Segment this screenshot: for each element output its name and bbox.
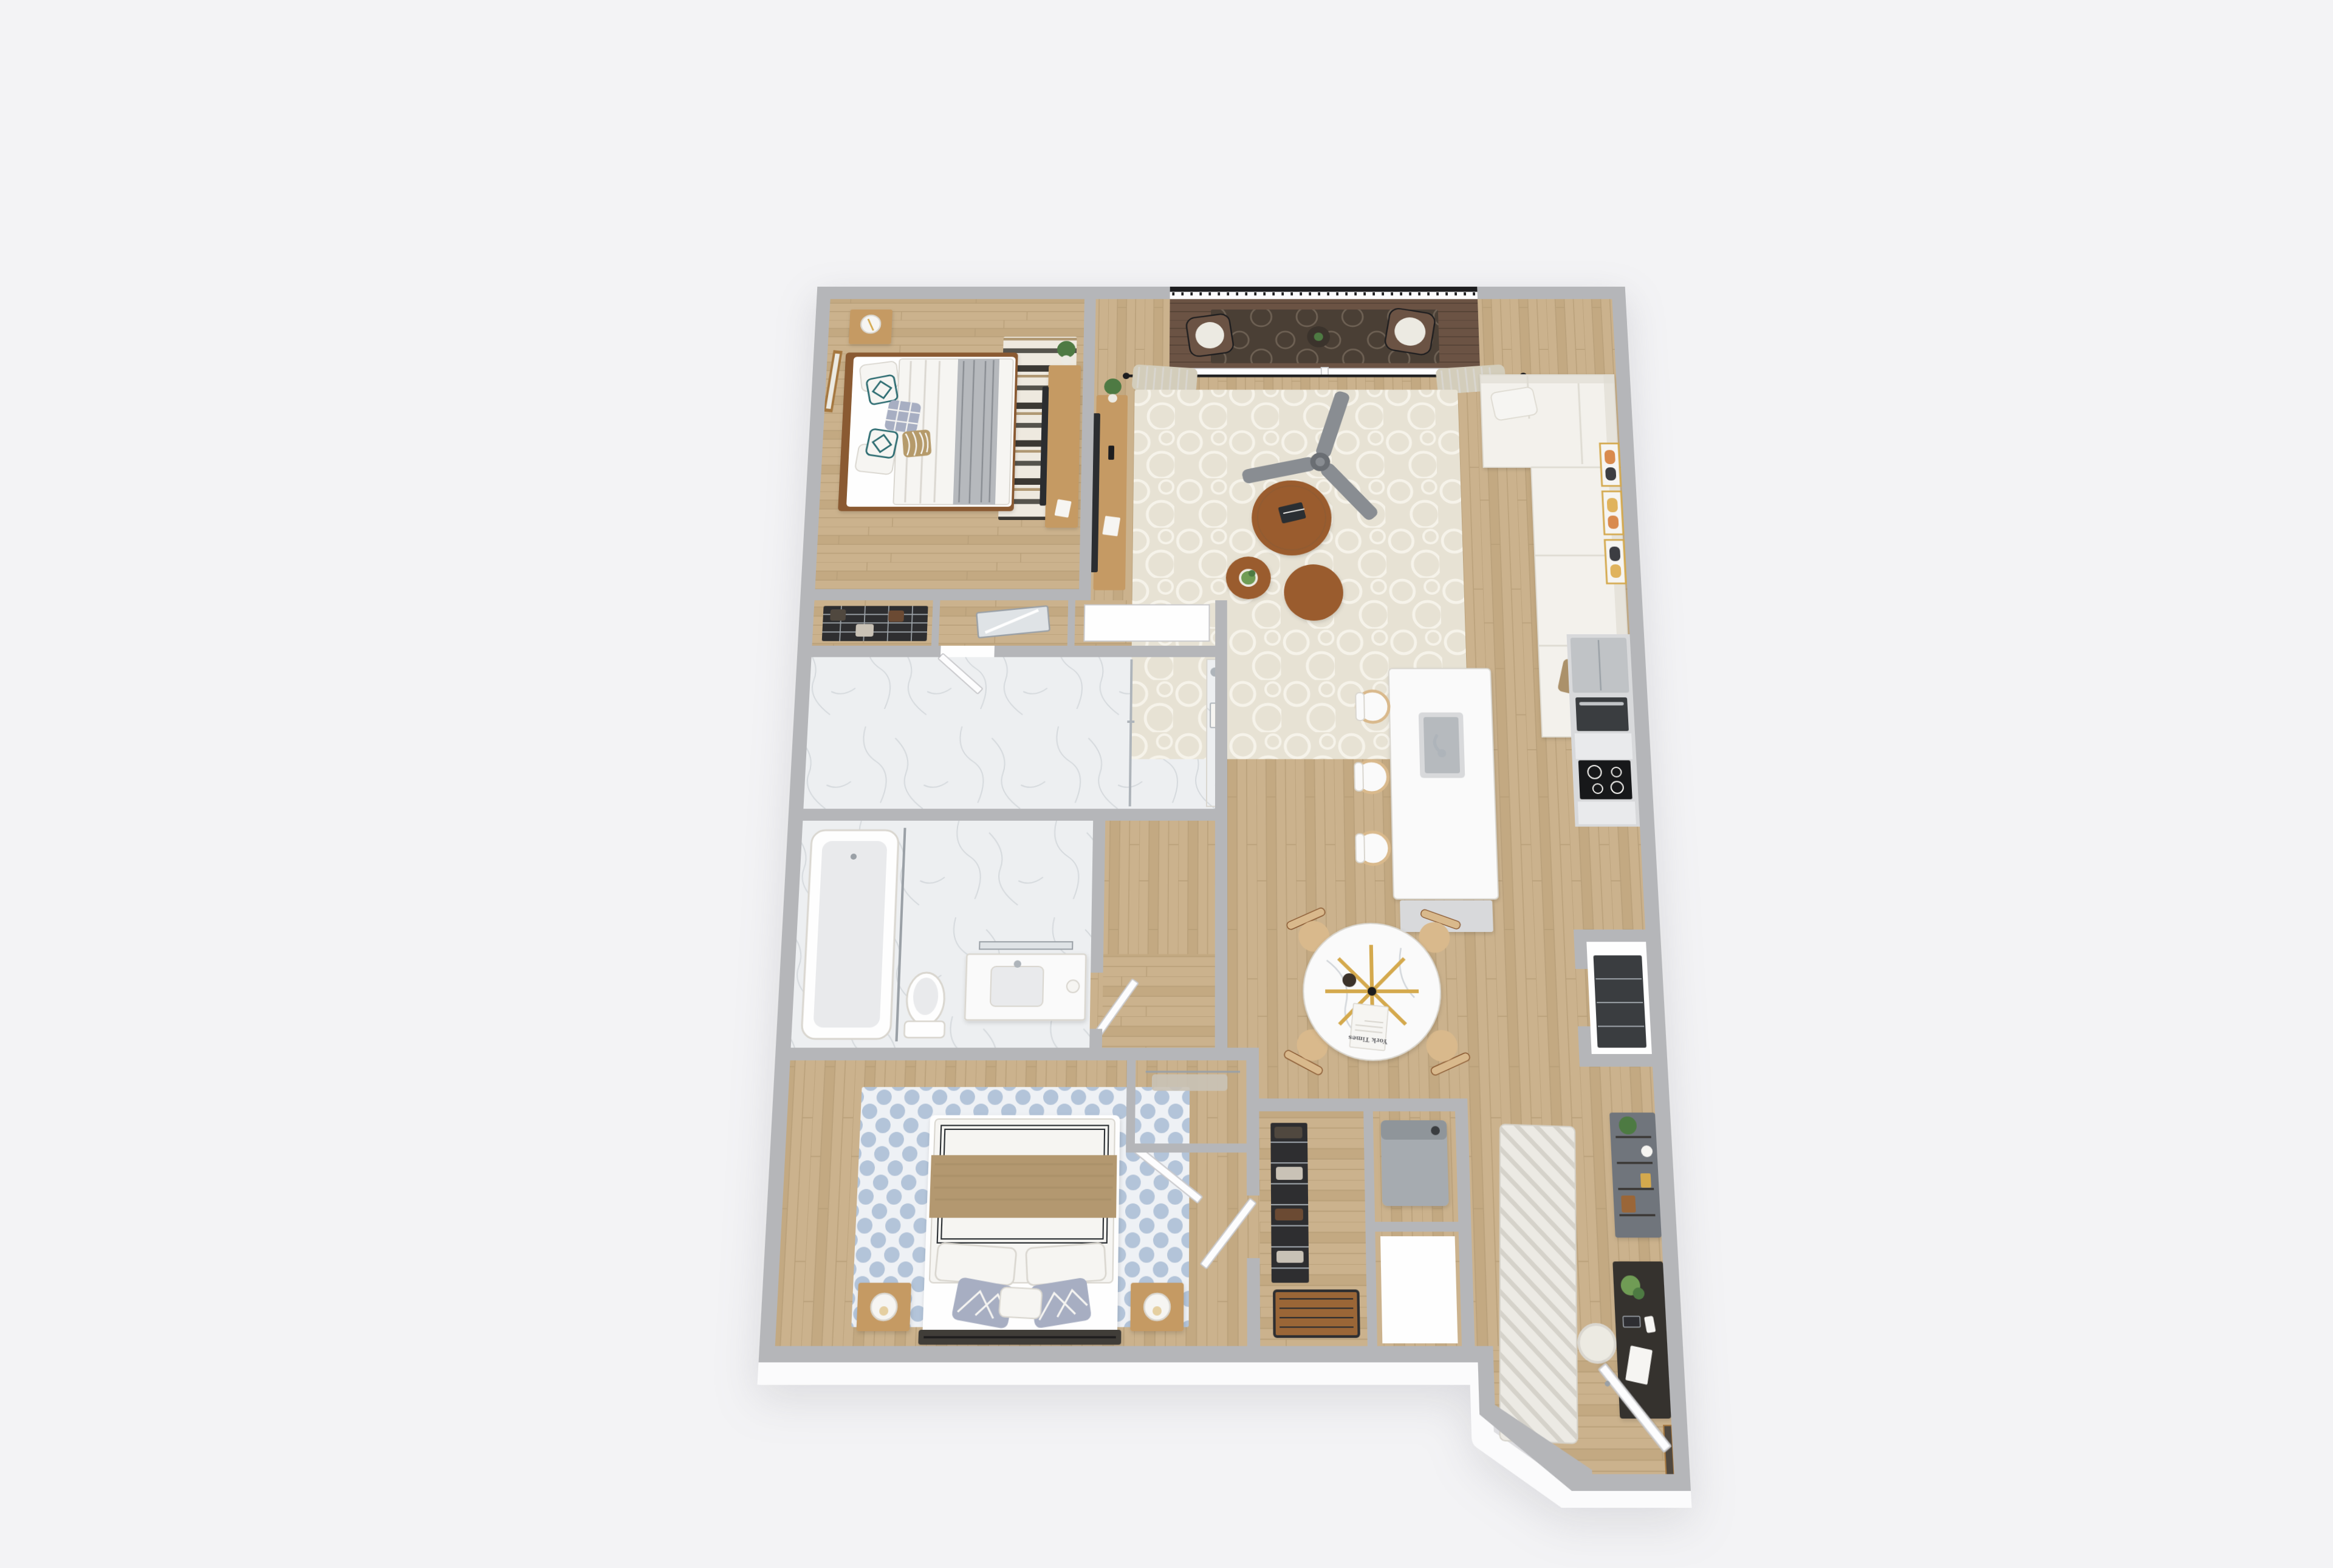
kitchen-island <box>1389 668 1499 932</box>
storage-bench <box>1274 1291 1358 1337</box>
island-base-cabinet <box>1400 900 1493 932</box>
washer-dryer <box>1381 1120 1449 1206</box>
island-sink-basin <box>1423 717 1460 773</box>
floor-plan-3d: York Times <box>750 287 1691 1508</box>
coat-closet-floor <box>1380 1236 1458 1343</box>
hutch-book <box>1640 1173 1651 1188</box>
pantry-shelves <box>1594 956 1647 1048</box>
vanity-mirror <box>979 942 1072 949</box>
wall-pantry-north <box>1574 930 1646 942</box>
closet-clothes <box>1152 1074 1228 1090</box>
rack-clothes-4 <box>1276 1251 1304 1263</box>
wall-pantry-west-b <box>1578 1026 1592 1054</box>
counter-upper <box>1575 733 1633 759</box>
rack-clothes-3 <box>1275 1208 1303 1220</box>
wall-bedroom2-closet-west <box>1126 1060 1136 1143</box>
bed1-pillow-tan-stripe <box>902 430 932 458</box>
gallery-frame-3 <box>1605 540 1626 584</box>
bar-stool-3 <box>1355 832 1389 864</box>
console-magazine <box>1102 516 1120 536</box>
striped-runner-rug <box>1500 1125 1578 1443</box>
table-plant-leaf <box>1249 570 1256 577</box>
render-canvas: York Times <box>0 0 2333 1568</box>
linen-closet-door <box>1084 605 1209 642</box>
bed2-pillow-center <box>999 1287 1043 1319</box>
bar-stool-2 <box>1354 761 1388 792</box>
vanity <box>965 942 1086 1020</box>
bed1-pillow-teal-2 <box>866 429 899 459</box>
wall-utility-north <box>1259 1098 1468 1111</box>
wall-bath1-north-a <box>812 646 941 657</box>
wire-shelf-closet <box>822 606 928 641</box>
bar-stools <box>1353 691 1392 864</box>
wall-exterior-top-left <box>817 287 1170 300</box>
shower-glass-panel <box>1130 659 1132 806</box>
bedroom1-bed <box>838 352 1018 511</box>
wall-bedroom2-closet-south <box>1126 1143 1247 1152</box>
hanging-clothes-3 <box>888 611 904 622</box>
wall-pantry-south <box>1579 1054 1653 1067</box>
wall-exterior-bottom <box>759 1346 1494 1363</box>
wall-bath2-east-b <box>1089 1029 1102 1047</box>
sofa-back-top <box>1480 375 1614 383</box>
bedroom2-nightstand-left <box>857 1283 912 1332</box>
bed1-pillow-plaid <box>884 400 922 434</box>
counter-lower <box>1578 802 1636 824</box>
curtain-left <box>1131 365 1197 394</box>
hanging-clothes-1 <box>830 609 846 621</box>
wall-bedroom1-south <box>815 589 1091 601</box>
rack-clothes-1 <box>1275 1127 1303 1138</box>
wall-bath2-east-a <box>1091 821 1105 973</box>
wall-bedroom2-east-b <box>1247 1258 1260 1346</box>
bedroom2-bed <box>918 1115 1123 1345</box>
pantry <box>1586 942 1652 1054</box>
desk-keyboard <box>1623 1316 1640 1327</box>
console-remote <box>1108 446 1114 460</box>
vanity-towel-roll <box>1067 980 1080 992</box>
console-hutch <box>1609 1112 1662 1238</box>
hanging-clothes-2 <box>855 624 874 637</box>
walk-in-closet-racks <box>1270 1123 1309 1282</box>
wall-bath1-south <box>803 809 1215 821</box>
gallery-frame-2 <box>1602 491 1623 535</box>
wall-bedroom2-east-a <box>1246 1060 1259 1195</box>
sphere-lamp-right-glow <box>1153 1306 1162 1315</box>
bar-stool-1 <box>1355 691 1389 722</box>
floor-plan-svg: York Times <box>750 287 1691 1508</box>
wall-utility-divider-h <box>1375 1222 1459 1231</box>
bedroom2-nightstand-right <box>1130 1283 1184 1332</box>
balcony-railing <box>1170 287 1478 292</box>
vanity-sink <box>990 967 1044 1006</box>
rack-clothes-2 <box>1276 1167 1303 1180</box>
wall-exterior-top-right <box>1477 287 1626 300</box>
wicker-chair-left <box>1185 313 1235 358</box>
wall-bedroom2-north <box>790 1048 1259 1061</box>
wall-pantry-west-a <box>1574 942 1588 969</box>
wall-leftblock-east <box>1215 600 1228 1047</box>
bedroom1-nightstand <box>849 310 892 344</box>
oven-handle <box>1579 702 1623 706</box>
wall-closet-divider-2 <box>1067 600 1075 646</box>
island-top <box>1389 668 1499 899</box>
desk-chair <box>1578 1324 1616 1362</box>
newspaper: York Times <box>1348 1003 1391 1051</box>
wicker-chair-right <box>1384 307 1436 356</box>
gallery-frame-1 <box>1600 443 1620 486</box>
hutch-basket <box>1621 1196 1636 1213</box>
bed2-pillow-white-2 <box>1026 1243 1106 1286</box>
wall-nook-left <box>1478 1346 1495 1415</box>
cooktop <box>1578 760 1632 799</box>
shower-glass-handle <box>1127 721 1134 723</box>
wall-bath1-north-b <box>994 646 1215 657</box>
bathtub <box>801 830 899 1039</box>
wall-nook-bottom <box>1586 1474 1675 1491</box>
cabinet-run <box>1567 634 1640 827</box>
bed2-pillow-white-1 <box>935 1243 1017 1286</box>
